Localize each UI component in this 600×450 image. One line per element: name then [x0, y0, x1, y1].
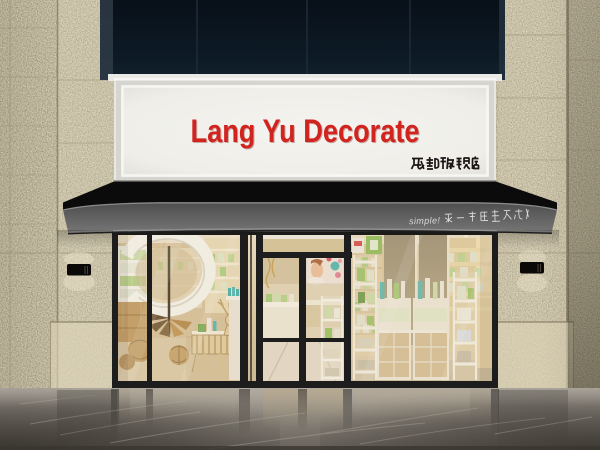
svg-text:simple!: simple!: [409, 215, 441, 226]
svg-text:Lang Yu Decorate: Lang Yu Decorate: [191, 113, 420, 149]
